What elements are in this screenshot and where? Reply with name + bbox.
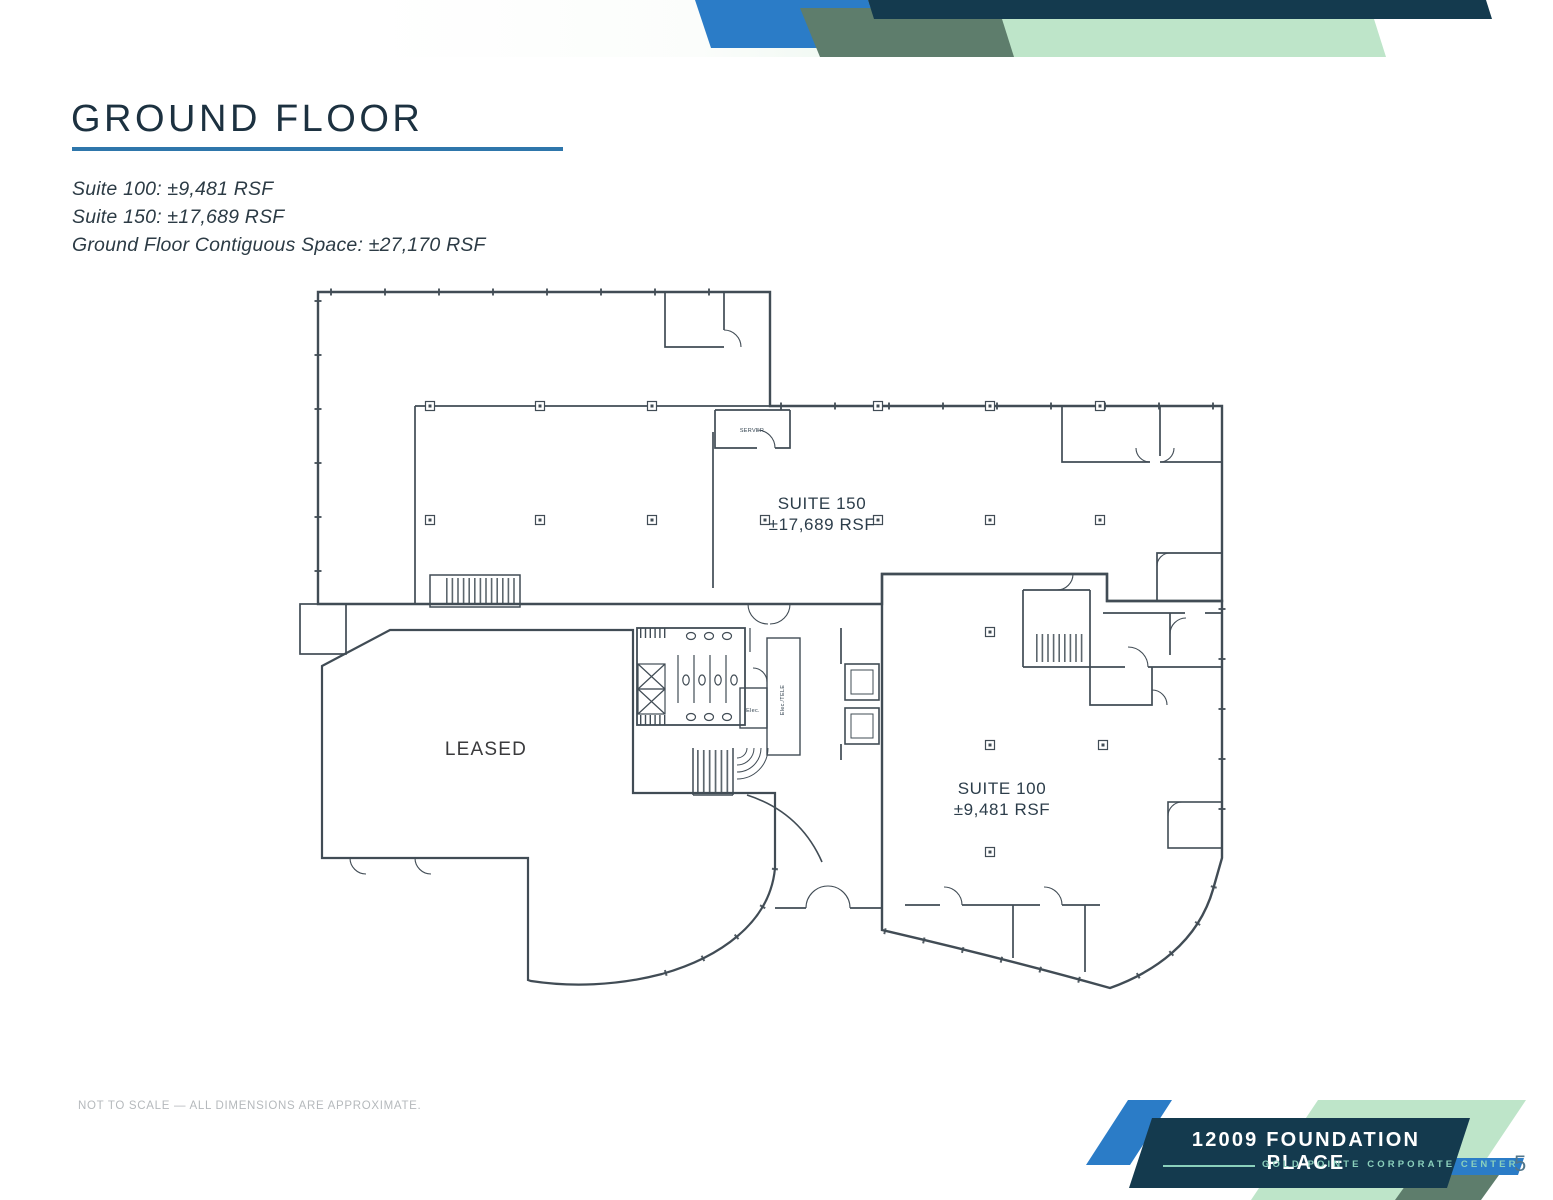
suite-100-label: SUITE 100 (958, 779, 1047, 798)
suite-100-area-label: ±9,481 RSF (954, 800, 1051, 819)
campus-name: GOLD POINTE CORPORATE CENTER (1262, 1159, 1519, 1170)
header-banner (0, 0, 1553, 60)
stat-suite100: Suite 100: ±9,481 RSF (72, 175, 486, 203)
suite-100-area (882, 574, 1222, 988)
suite-150-area (318, 292, 1222, 604)
brochure-page: GROUND FLOOR Suite 100: ±9,481 RSF Suite… (0, 0, 1553, 1200)
title-underline (72, 147, 563, 151)
leased-area (322, 630, 775, 985)
suite-150-label: SUITE 150 (778, 494, 867, 513)
page-title: GROUND FLOOR (71, 98, 423, 141)
main-entry-doors (775, 886, 882, 908)
suite-stats: Suite 100: ±9,481 RSF Suite 150: ±17,689… (72, 175, 486, 259)
annex-room (300, 604, 346, 654)
server-room-label: SERVER (740, 428, 764, 434)
suite-150-interior-walls (415, 292, 1222, 604)
suite-100-interior-walls (905, 590, 1222, 972)
core-stairs (693, 748, 822, 862)
floor-plan: SUITE 150 ±17,689 RSF SUITE 100 ±9,481 R… (290, 278, 1250, 1010)
logo-divider-line (1163, 1165, 1255, 1167)
banner-navy-shape (868, 0, 1492, 19)
banner-lightgreen-shape (1002, 19, 1386, 57)
stat-contiguous: Ground Floor Contiguous Space: ±27,170 R… (72, 231, 486, 259)
page-number: 5 (1514, 1151, 1526, 1177)
suite-150-area-label: ±17,689 RSF (769, 515, 876, 534)
disclaimer-text: NOT TO SCALE — ALL DIMENSIONS ARE APPROX… (78, 1100, 421, 1112)
core-utility-rooms (740, 638, 800, 755)
suite-100-corner-room (1168, 802, 1222, 848)
core-elevators (841, 628, 879, 760)
elec-room-label: Elec. (746, 708, 760, 714)
stat-suite150: Suite 150: ±17,689 RSF (72, 203, 486, 231)
leased-label: LEASED (445, 739, 527, 760)
elec-tele-room-label: Elec./TELE (780, 685, 786, 716)
core-restrooms (637, 628, 750, 725)
suite-150-stairs (430, 575, 520, 607)
door-arcs (350, 330, 1186, 905)
